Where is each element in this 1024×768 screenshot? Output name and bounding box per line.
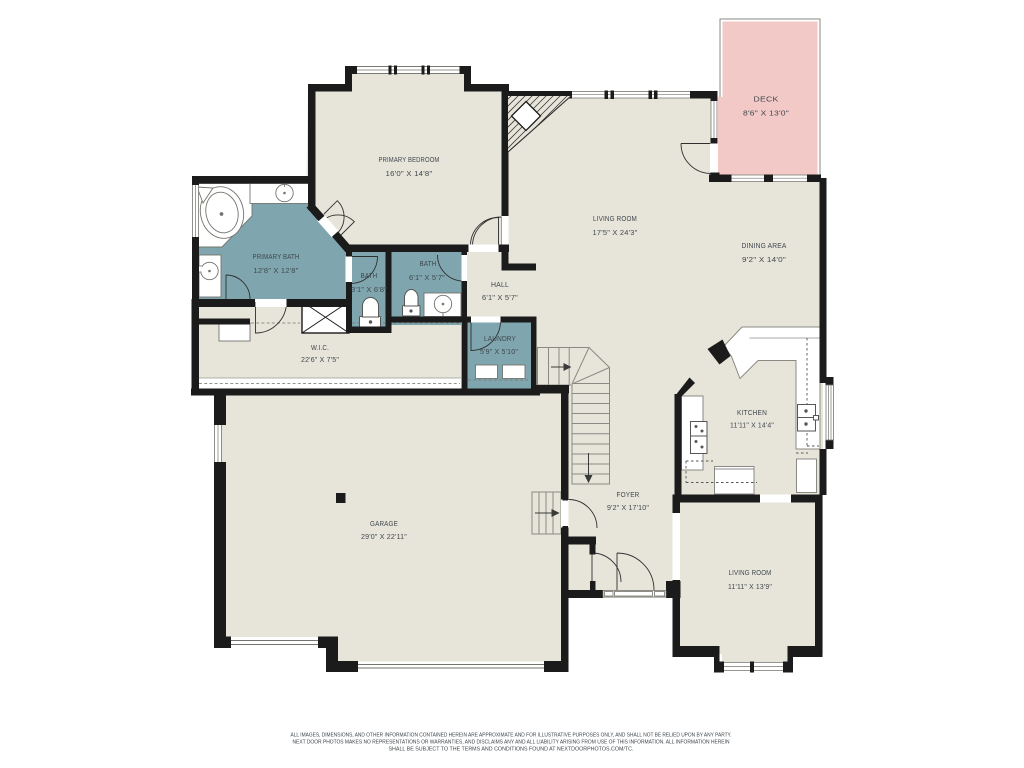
svg-text:11'11" X 13'9": 11'11" X 13'9" — [728, 582, 772, 591]
svg-text:NEXT DOOR PHOTOS MAKES NO REPR: NEXT DOOR PHOTOS MAKES NO REPRESENTATION… — [293, 740, 730, 746]
svg-text:9'2" X 14'0": 9'2" X 14'0" — [742, 255, 786, 264]
svg-text:BATH: BATH — [420, 259, 437, 268]
svg-text:6'1" X 5'7": 6'1" X 5'7" — [409, 273, 445, 282]
svg-text:22'6" X 7'5": 22'6" X 7'5" — [301, 355, 339, 364]
svg-text:6'1" X 5'7": 6'1" X 5'7" — [482, 293, 518, 302]
svg-text:HALL: HALL — [491, 280, 509, 289]
svg-text:PRIMARY BEDROOM: PRIMARY BEDROOM — [379, 155, 440, 164]
svg-text:16'0" X 14'8": 16'0" X 14'8" — [386, 169, 433, 178]
svg-text:5'9" X 5'10": 5'9" X 5'10" — [480, 347, 518, 356]
svg-text:FOYER: FOYER — [617, 490, 640, 499]
svg-text:3'1" X 6'8": 3'1" X 6'8" — [351, 285, 387, 294]
svg-text:PRIMARY BATH: PRIMARY BATH — [253, 252, 300, 261]
svg-text:12'8" X 12'8": 12'8" X 12'8" — [254, 266, 299, 275]
svg-text:SHALL BE SUBJECT TO THE TERMS: SHALL BE SUBJECT TO THE TERMS AND CONDIT… — [389, 747, 634, 753]
svg-text:17'5" X 24'3": 17'5" X 24'3" — [593, 228, 638, 237]
svg-text:DINING AREA: DINING AREA — [742, 241, 787, 250]
svg-text:8'6" X 13'0": 8'6" X 13'0" — [743, 109, 789, 118]
svg-text:LAUNDRY: LAUNDRY — [484, 334, 516, 343]
svg-text:ALL IMAGES, DIMENSIONS, AND OT: ALL IMAGES, DIMENSIONS, AND OTHER INFORM… — [291, 733, 732, 739]
svg-text:LIVING ROOM: LIVING ROOM — [593, 214, 637, 223]
svg-text:9'2" X 17'10": 9'2" X 17'10" — [607, 503, 649, 512]
svg-text:LIVING ROOM: LIVING ROOM — [729, 568, 772, 577]
svg-text:KITCHEN: KITCHEN — [737, 408, 767, 417]
svg-text:GARAGE: GARAGE — [370, 519, 398, 528]
svg-text:W.I.C.: W.I.C. — [311, 343, 329, 352]
svg-text:11'11" X 14'4": 11'11" X 14'4" — [730, 421, 774, 430]
svg-text:BATH: BATH — [361, 271, 378, 280]
svg-text:29'0" X 22'11": 29'0" X 22'11" — [361, 532, 407, 541]
svg-text:DECK: DECK — [754, 95, 779, 104]
